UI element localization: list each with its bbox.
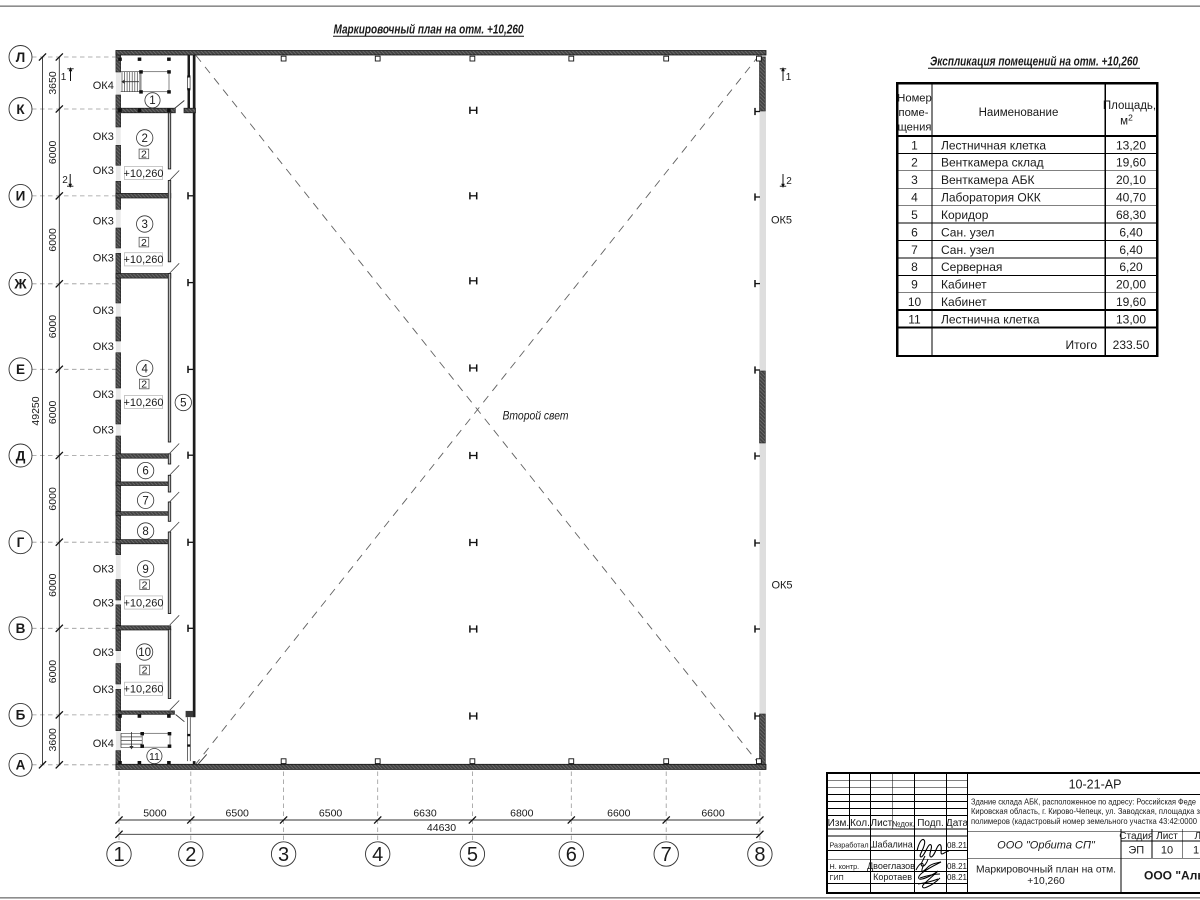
svg-text:44630: 44630 (427, 822, 456, 834)
svg-text:ОК3: ОК3 (93, 253, 114, 265)
svg-text:4: 4 (372, 844, 383, 866)
svg-text:08.21: 08.21 (947, 873, 968, 882)
svg-text:1: 1 (1193, 845, 1199, 857)
svg-text:ОК3: ОК3 (93, 215, 114, 227)
svg-text:1: 1 (113, 844, 124, 866)
svg-text:6500: 6500 (319, 808, 343, 820)
svg-text:3650: 3650 (47, 71, 59, 95)
svg-text:1: 1 (149, 95, 155, 107)
svg-text:Кол.: Кол. (850, 818, 870, 829)
svg-text:Коротаев: Коротаев (873, 872, 912, 882)
svg-text:2: 2 (62, 175, 68, 186)
svg-text:Дата: Дата (946, 818, 969, 829)
svg-text:ОК3: ОК3 (93, 131, 114, 143)
svg-text:5: 5 (911, 208, 918, 222)
svg-text:ЭП: ЭП (1128, 845, 1144, 857)
svg-text:+10,260: +10,260 (123, 254, 163, 266)
svg-text:щения: щения (898, 122, 932, 134)
svg-text:Сан. узел: Сан. узел (941, 225, 994, 239)
svg-text:6000: 6000 (47, 401, 59, 425)
svg-text:2: 2 (786, 176, 792, 187)
svg-text:3: 3 (278, 844, 289, 866)
svg-text:1: 1 (61, 72, 67, 83)
svg-text:Второй свет: Второй свет (503, 408, 569, 422)
svg-text:ОК3: ОК3 (93, 165, 114, 177)
svg-text:+10,260: +10,260 (1027, 876, 1065, 887)
svg-text:Коридор: Коридор (941, 208, 989, 222)
svg-text:Кировская область, г. Кирово-Ч: Кировская область, г. Кирово-Чепецк, ул.… (971, 806, 1200, 816)
svg-text:6000: 6000 (47, 228, 59, 252)
svg-text:Экспликация помещений на отм.: Экспликация помещений на отм. +10,260 (930, 55, 1138, 69)
svg-text:Маркировочный план на отм. +10: Маркировочный план на отм. +10,260 (334, 23, 524, 37)
svg-text:6800: 6800 (510, 808, 534, 820)
svg-text:+10,260: +10,260 (123, 168, 163, 180)
svg-text:Кабинет: Кабинет (941, 278, 987, 292)
svg-text:ОК5: ОК5 (771, 215, 792, 227)
svg-text:6000: 6000 (47, 660, 59, 684)
svg-text:ОК3: ОК3 (93, 564, 114, 576)
svg-text:10: 10 (138, 647, 151, 659)
svg-text:08.21: 08.21 (947, 862, 968, 871)
svg-text:19,60: 19,60 (1116, 156, 1146, 170)
svg-text:Венткамера АБК: Венткамера АБК (941, 173, 1034, 187)
svg-text:ОК4: ОК4 (93, 80, 114, 92)
svg-text:8: 8 (911, 260, 918, 274)
svg-text:2: 2 (911, 156, 918, 170)
svg-text:А: А (16, 758, 26, 773)
svg-text:2: 2 (142, 665, 148, 677)
svg-text:ОК3: ОК3 (93, 389, 114, 401)
svg-text:4: 4 (911, 191, 918, 205)
svg-text:Н. контр.: Н. контр. (830, 862, 860, 871)
svg-text:6600: 6600 (607, 808, 631, 820)
svg-text:6000: 6000 (47, 487, 59, 511)
svg-text:2: 2 (141, 149, 147, 161)
svg-text:2: 2 (185, 844, 196, 866)
svg-text:+10,260: +10,260 (123, 397, 163, 409)
svg-text:Лист: Лист (1156, 831, 1178, 842)
svg-text:ОК3: ОК3 (93, 305, 114, 317)
svg-text:Стадия: Стадия (1119, 831, 1153, 842)
svg-text:В: В (16, 621, 26, 636)
svg-text:6500: 6500 (226, 808, 250, 820)
svg-text:Венткамера склад: Венткамера склад (941, 156, 1044, 170)
svg-text:Серверная: Серверная (941, 260, 1002, 274)
svg-text:19,60: 19,60 (1116, 295, 1146, 309)
svg-text:6,40: 6,40 (1119, 243, 1143, 257)
svg-text:Маркировочный план на отм.: Маркировочный план на отм. (976, 865, 1116, 876)
svg-text:ГИП: ГИП (830, 873, 844, 882)
svg-text:Е: Е (16, 362, 25, 377)
svg-text:Наименование: Наименование (979, 107, 1059, 119)
svg-text:6000: 6000 (47, 315, 59, 339)
svg-text:233.50: 233.50 (1113, 338, 1150, 352)
svg-text:2: 2 (141, 379, 147, 391)
svg-text:8: 8 (754, 844, 765, 866)
svg-text:7: 7 (911, 243, 918, 257)
svg-text:Итого: Итого (1066, 338, 1098, 352)
svg-text:9: 9 (911, 278, 918, 292)
svg-text:Лист: Лист (871, 818, 893, 829)
svg-text:10-21-АР: 10-21-АР (1069, 778, 1122, 792)
svg-text:10: 10 (908, 295, 922, 309)
svg-text:Изм.: Изм. (828, 818, 849, 829)
svg-text:Л: Л (16, 50, 25, 65)
svg-text:6,20: 6,20 (1119, 260, 1143, 274)
svg-text:Разработал: Разработал (830, 841, 869, 850)
svg-text:Д: Д (16, 448, 26, 463)
svg-text:10: 10 (1161, 845, 1173, 857)
svg-text:3: 3 (911, 173, 918, 187)
svg-text:2: 2 (142, 579, 148, 591)
svg-text:20,00: 20,00 (1116, 278, 1146, 292)
svg-text:9: 9 (142, 564, 148, 576)
svg-text:5: 5 (180, 398, 186, 410)
svg-text:ОК3: ОК3 (93, 425, 114, 437)
svg-text:ОК5: ОК5 (771, 580, 792, 592)
svg-text:11: 11 (149, 751, 160, 763)
svg-text:6000: 6000 (47, 141, 59, 165)
svg-text:20,10: 20,10 (1116, 173, 1146, 187)
svg-text:Лестнична клетка: Лестнична клетка (941, 313, 1040, 327)
svg-text:13,20: 13,20 (1116, 138, 1146, 152)
svg-text:поме-: поме- (899, 107, 929, 119)
svg-text:Площадь,: Площадь, (1103, 100, 1156, 112)
svg-text:И: И (16, 189, 26, 204)
svg-text:13,00: 13,00 (1116, 313, 1146, 327)
svg-text:ОК3: ОК3 (93, 684, 114, 696)
svg-text:49250: 49250 (30, 396, 42, 425)
svg-text:7: 7 (142, 495, 148, 507)
svg-text:ООО "Орбита СП": ООО "Орбита СП" (997, 840, 1096, 852)
svg-text:ОК3: ОК3 (93, 341, 114, 353)
svg-text:5: 5 (467, 844, 478, 866)
svg-text:Шабалина: Шабалина (869, 840, 912, 850)
svg-text:Здание склада АБК, расположенн: Здание склада АБК, расположенное по адре… (971, 797, 1196, 807)
svg-text:3: 3 (141, 219, 147, 231)
svg-text:Б: Б (16, 708, 26, 723)
svg-text:11: 11 (908, 313, 921, 327)
svg-text:6: 6 (566, 844, 577, 866)
svg-text:68,30: 68,30 (1116, 208, 1146, 222)
svg-text:6,40: 6,40 (1119, 225, 1143, 239)
svg-text:полимеров (кадастровый номер з: полимеров (кадастровый номер земельного … (971, 816, 1197, 826)
svg-text:+10,260: +10,260 (123, 597, 163, 609)
svg-text:Двоеглазов: Двоеглазов (867, 861, 915, 871)
svg-text:ООО "Альянс: ООО "Альянс (1144, 869, 1200, 883)
svg-text:2: 2 (141, 133, 147, 145)
svg-text:40,70: 40,70 (1116, 191, 1146, 205)
svg-text:ОК4: ОК4 (93, 738, 114, 750)
svg-text:Лестничная клетка: Лестничная клетка (941, 138, 1046, 152)
svg-text:4: 4 (141, 363, 148, 375)
svg-text:6600: 6600 (701, 808, 725, 820)
svg-text:К: К (16, 102, 25, 117)
svg-text:7: 7 (661, 844, 672, 866)
svg-text:Номер: Номер (897, 93, 931, 105)
svg-text:+10,260: +10,260 (123, 684, 163, 696)
svg-text:6: 6 (911, 225, 918, 239)
svg-text:8: 8 (142, 526, 148, 538)
svg-text:Ли: Ли (1195, 831, 1200, 842)
svg-text:ОК3: ОК3 (93, 647, 114, 659)
svg-text:6: 6 (142, 466, 148, 478)
svg-text:Подп.: Подп. (917, 818, 944, 829)
svg-text:1: 1 (911, 138, 918, 152)
svg-text:1: 1 (786, 72, 792, 83)
svg-text:№док.: №док. (892, 820, 915, 829)
svg-text:5000: 5000 (143, 808, 167, 820)
svg-text:Г: Г (17, 535, 25, 550)
svg-text:ОК3: ОК3 (93, 598, 114, 610)
svg-text:Лаборатория ОКК: Лаборатория ОКК (941, 191, 1041, 205)
svg-text:Сан. узел: Сан. узел (941, 243, 994, 257)
svg-text:Ж: Ж (13, 277, 27, 292)
svg-text:6000: 6000 (47, 573, 59, 597)
svg-text:2: 2 (141, 237, 147, 249)
svg-text:Кабинет: Кабинет (941, 295, 987, 309)
svg-text:6630: 6630 (413, 808, 437, 820)
svg-text:08.21: 08.21 (947, 841, 968, 850)
svg-text:3600: 3600 (47, 728, 59, 752)
